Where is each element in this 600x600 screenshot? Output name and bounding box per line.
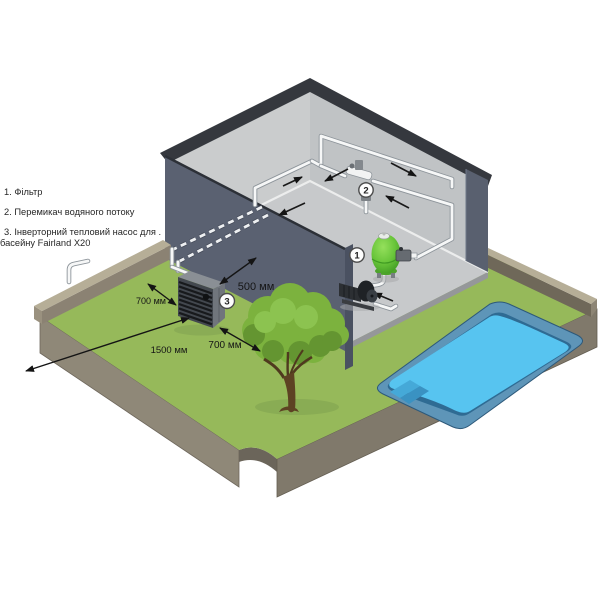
tree-shadow	[255, 399, 339, 415]
legend-item-1: 1. Фільтр	[4, 187, 42, 197]
multiport-valve	[396, 250, 411, 261]
filter-shadow	[373, 276, 399, 283]
filter-leg-left	[377, 273, 381, 278]
installation-diagram: 700 мм 500 мм 1500 мм 700 мм 1 2 3 1. Фі…	[0, 0, 600, 600]
valve-handle	[399, 247, 403, 251]
filter-leg-right	[391, 273, 395, 278]
pump-cap-bolt	[371, 295, 374, 298]
legend-item-3-line1: 3. Інверторний тепловий насос для .	[4, 227, 161, 237]
marker-2-number: 2	[363, 185, 368, 196]
legend-item-2: 2. Перемикач водяного потоку	[4, 207, 135, 217]
flow-switch-head	[355, 160, 363, 170]
legend-item-3-line2: басейну Fairland X20	[0, 238, 90, 248]
dim-label-rear: 500 мм	[238, 281, 275, 293]
marker-1: 1	[350, 248, 364, 262]
cut-wall-column-right	[466, 169, 488, 272]
heat-pump-shadow	[174, 325, 230, 336]
marker-3-number: 3	[224, 296, 229, 307]
diagram-canvas: 700 мм 500 мм 1500 мм 700 мм 1 2 3 1. Фі…	[0, 0, 600, 600]
dim-label-right: 700 мм	[208, 340, 241, 351]
heat-pump-fan-icon	[203, 294, 209, 300]
marker-1-number: 1	[354, 250, 360, 261]
flow-switch-knob	[350, 164, 355, 169]
dim-label-left: 700 мм	[136, 296, 166, 306]
dim-label-front: 1500 мм	[151, 345, 188, 356]
marker-2: 2	[359, 183, 373, 197]
marker-3: 3	[220, 294, 235, 309]
filter-lid-knob	[383, 233, 386, 236]
